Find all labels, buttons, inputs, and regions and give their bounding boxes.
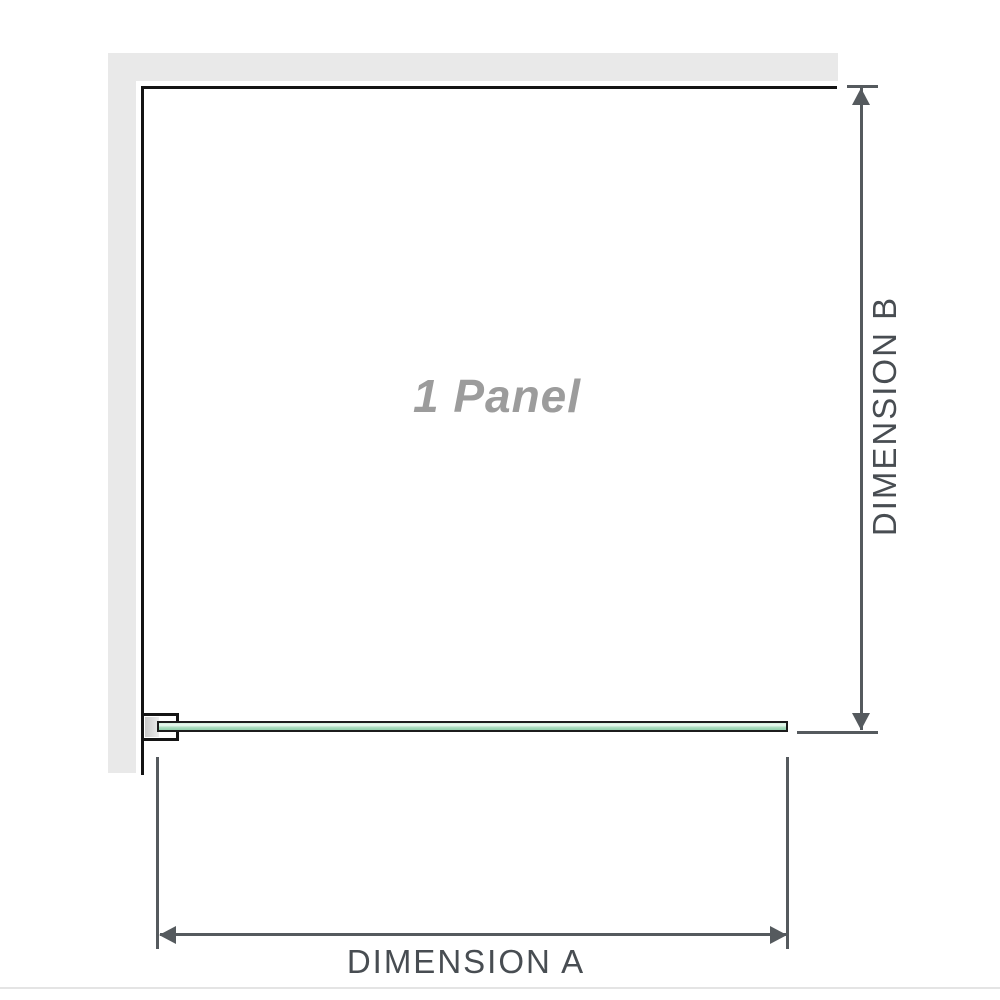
dimension-a-right-tick <box>786 757 789 949</box>
dimension-b-line <box>860 87 863 730</box>
panel-count-label: 1 Panel <box>413 369 581 423</box>
panel-left-edge <box>141 86 144 775</box>
arrow-up-icon <box>852 88 870 105</box>
arrow-right-icon <box>770 926 787 944</box>
arrow-left-icon <box>159 926 176 944</box>
wall-top-bar <box>108 53 838 81</box>
arrow-down-icon <box>852 713 870 730</box>
panel-top-edge <box>141 86 837 89</box>
dimension-b-label: DIMENSION B <box>866 296 904 536</box>
wall-left-bar <box>108 53 136 773</box>
dimension-a-label: DIMENSION A <box>347 943 585 981</box>
shower-panel-dimension-diagram: 1 Panel DIMENSION B DIMENSION A <box>0 0 1000 1000</box>
glass-panel <box>157 721 788 732</box>
dimension-a-line <box>160 933 787 936</box>
dimension-b-bottom-tick <box>797 731 878 734</box>
dimension-a-left-tick <box>156 757 159 949</box>
page-bottom-rule <box>0 987 1000 989</box>
